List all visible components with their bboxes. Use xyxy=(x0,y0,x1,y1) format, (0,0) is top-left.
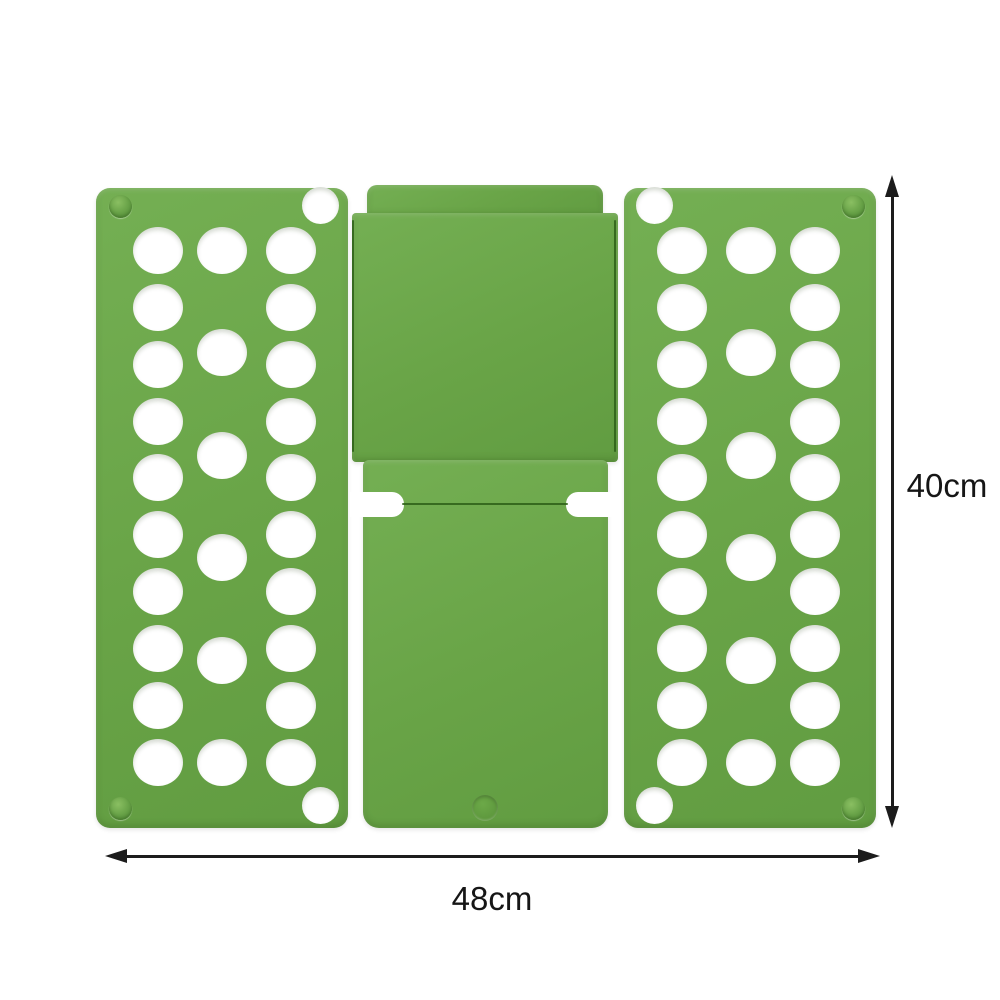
fold-hole xyxy=(197,432,247,479)
fold-hole xyxy=(657,341,707,388)
width-dimension-label: 48cm xyxy=(417,878,567,920)
fold-hole xyxy=(266,227,316,274)
fold-hole xyxy=(133,454,183,501)
arrowhead-up-icon xyxy=(885,175,899,197)
fold-hole xyxy=(197,739,247,786)
fold-hole xyxy=(657,454,707,501)
fold-hole xyxy=(266,454,316,501)
fold-hole xyxy=(266,341,316,388)
fold-hole xyxy=(197,329,247,376)
dimple xyxy=(472,795,498,821)
fold-hole xyxy=(197,534,247,581)
hinge-notch-left xyxy=(350,492,404,517)
arrowhead-down-icon xyxy=(885,806,899,828)
fold-hole xyxy=(790,682,840,729)
fold-hole xyxy=(790,284,840,331)
corner-hole xyxy=(636,187,673,224)
left-panel xyxy=(96,188,348,828)
fold-hole xyxy=(133,398,183,445)
fold-hole xyxy=(133,682,183,729)
fold-hole xyxy=(790,454,840,501)
arrowhead-right-icon xyxy=(858,849,880,863)
rivet xyxy=(109,797,132,820)
fold-hole xyxy=(657,398,707,445)
rivet xyxy=(842,797,865,820)
height-dimension-label: 40cm xyxy=(893,465,1000,507)
fold-hole xyxy=(133,284,183,331)
fold-hole xyxy=(657,227,707,274)
fold-hole xyxy=(790,739,840,786)
fold-hole xyxy=(726,739,776,786)
fold-hole xyxy=(133,227,183,274)
hinge-seam-right xyxy=(614,220,616,452)
fold-hole xyxy=(266,398,316,445)
rivet xyxy=(842,195,865,218)
fold-hole xyxy=(197,227,247,274)
width-arrow-line xyxy=(123,855,859,858)
fold-hole xyxy=(133,511,183,558)
fold-hole xyxy=(133,341,183,388)
fold-hole xyxy=(197,637,247,684)
rivet xyxy=(109,195,132,218)
fold-hole xyxy=(266,682,316,729)
product-image: 40cm 48cm xyxy=(0,0,1000,1000)
fold-hole xyxy=(726,329,776,376)
hinge-seam-middle xyxy=(402,503,568,505)
fold-hole xyxy=(790,511,840,558)
fold-hole xyxy=(657,682,707,729)
fold-hole xyxy=(657,568,707,615)
fold-hole xyxy=(726,432,776,479)
fold-hole xyxy=(790,227,840,274)
fold-hole xyxy=(726,637,776,684)
top-center-panel xyxy=(352,213,618,462)
fold-hole xyxy=(790,625,840,672)
fold-hole xyxy=(657,284,707,331)
fold-hole xyxy=(266,739,316,786)
hinge-seam-left xyxy=(352,220,354,452)
right-panel xyxy=(624,188,876,828)
fold-hole xyxy=(266,568,316,615)
hinge-notch-right xyxy=(566,492,620,517)
corner-hole xyxy=(302,787,339,824)
corner-hole xyxy=(636,787,673,824)
fold-hole xyxy=(726,534,776,581)
fold-hole xyxy=(790,398,840,445)
fold-hole xyxy=(726,227,776,274)
fold-hole xyxy=(657,625,707,672)
fold-hole xyxy=(133,739,183,786)
fold-hole xyxy=(266,284,316,331)
fold-hole xyxy=(133,625,183,672)
corner-hole xyxy=(302,187,339,224)
fold-hole xyxy=(133,568,183,615)
fold-hole xyxy=(657,511,707,558)
fold-hole xyxy=(266,625,316,672)
fold-hole xyxy=(790,341,840,388)
fold-hole xyxy=(657,739,707,786)
arrowhead-left-icon xyxy=(105,849,127,863)
fold-hole xyxy=(266,511,316,558)
fold-hole xyxy=(790,568,840,615)
